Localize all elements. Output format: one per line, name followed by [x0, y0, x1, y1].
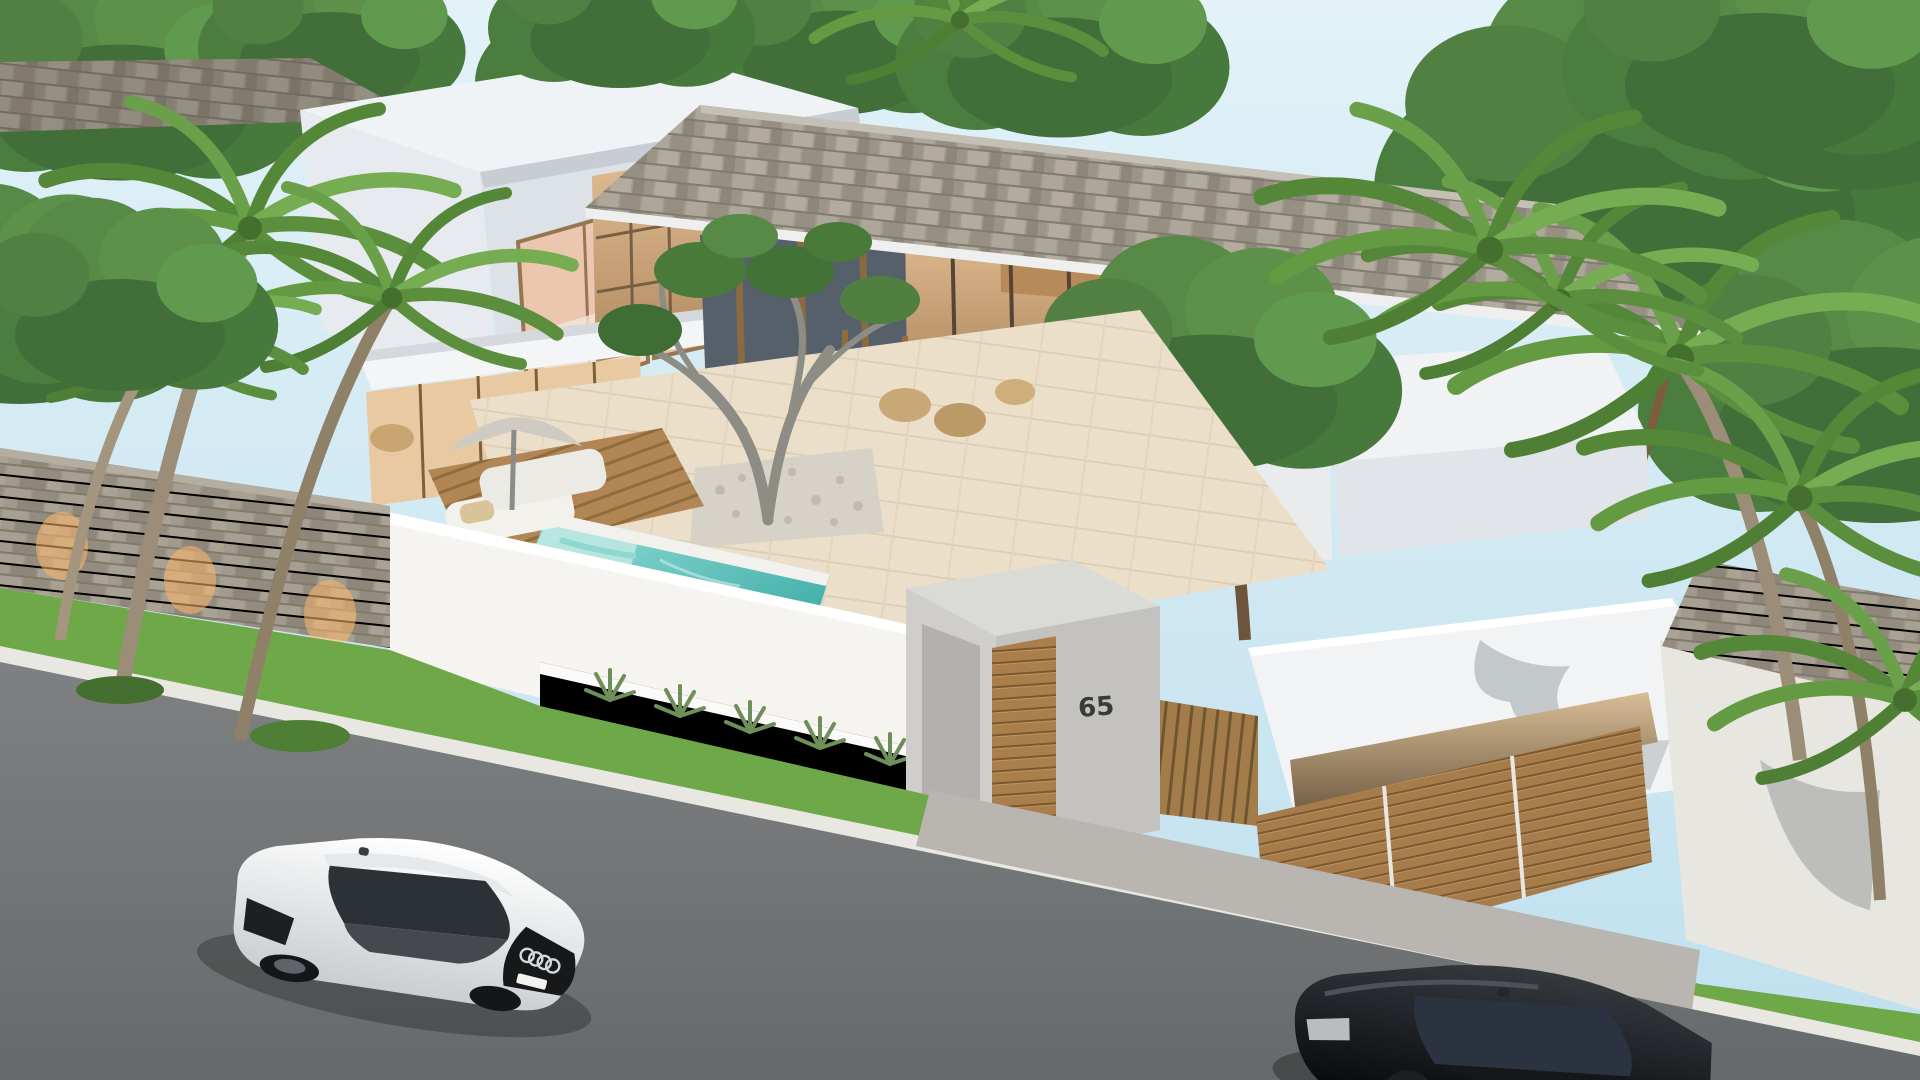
- villa-render: 65: [0, 0, 1920, 1080]
- slat-fence: [1160, 700, 1258, 826]
- render-canvas: 65: [0, 0, 1920, 1080]
- house-number-65: 65: [1077, 691, 1115, 723]
